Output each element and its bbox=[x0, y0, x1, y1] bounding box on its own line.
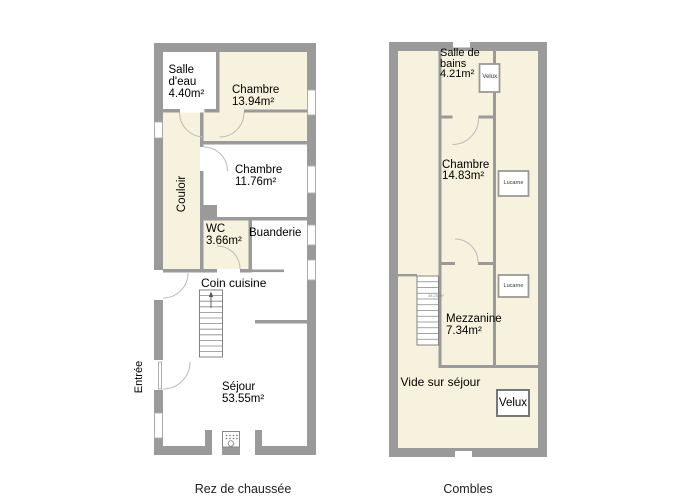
entrance-door-leaf bbox=[159, 362, 162, 389]
label-coin-cuisine: Coin cuisine bbox=[201, 277, 266, 289]
label-sejour: Séjour 53.55m² bbox=[222, 381, 264, 405]
label-chambre-2: Chambre 11.76m² bbox=[235, 164, 282, 188]
label-couloir: Couloir bbox=[176, 164, 188, 224]
window bbox=[308, 260, 316, 280]
window bbox=[308, 225, 316, 245]
combles-stairs bbox=[417, 276, 439, 345]
combles-plan bbox=[389, 42, 547, 457]
rez-stairs bbox=[200, 290, 223, 357]
label-lucarne-1: Lucarne bbox=[498, 180, 529, 186]
label-stairs-note: 38.25 m² bbox=[428, 294, 444, 298]
label-entree: Entrée bbox=[133, 347, 145, 407]
caption-combles: Combles bbox=[389, 482, 547, 496]
stove-icon bbox=[223, 432, 240, 448]
label-chambre-3: Chambre 14.83m² bbox=[442, 160, 489, 184]
label-lucarne-2: Lucarne bbox=[498, 283, 529, 289]
label-velux-top: Velux bbox=[479, 74, 501, 80]
caption-rez-de-chaussee: Rez de chaussée bbox=[162, 482, 324, 496]
label-mezzanine: Mezzanine 7.34m² bbox=[446, 313, 502, 337]
label-wc: WC 3.66m² bbox=[206, 223, 242, 247]
window bbox=[155, 122, 163, 138]
floorplan-geometry bbox=[0, 0, 700, 500]
floor-plan-canvas: Salle d'eau 4.40m² Chambre 13.94m² Coulo… bbox=[0, 0, 700, 500]
label-salle-deau: Salle d'eau 4.40m² bbox=[169, 64, 205, 100]
label-vide-sur-sejour: Vide sur séjour bbox=[401, 376, 481, 388]
label-chambre-1: Chambre 13.94m² bbox=[232, 84, 279, 108]
label-salle-de-bains: Salle de bains 4.21m² bbox=[440, 48, 480, 80]
window bbox=[155, 413, 163, 438]
label-buanderie: Buanderie bbox=[249, 227, 301, 239]
window bbox=[308, 90, 316, 115]
window bbox=[308, 166, 316, 193]
label-velux-bottom: Velux bbox=[496, 397, 530, 409]
